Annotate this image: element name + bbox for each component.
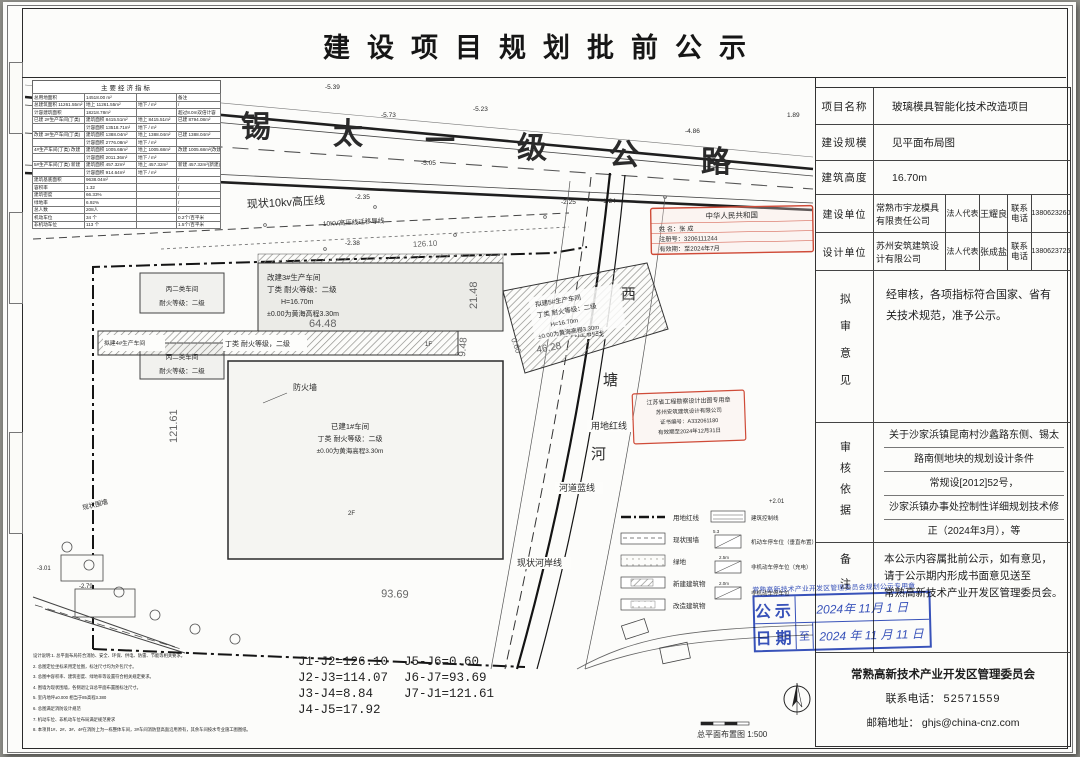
svg-text:丁类 耐火等级，二级: 丁类 耐火等级，二级 (225, 339, 290, 348)
basis-line: 沙家浜镇办事处控制性详细规划技术修 (884, 496, 1064, 520)
segment-length: J3-J4=8.84 (298, 686, 388, 702)
legend-renovated-building: 改造建筑物 (673, 601, 706, 610)
builder-legal-rep: 王耀良 (980, 195, 1008, 232)
blue-publicity-date-stamp: 常熟高新技术产业开发区管理委员会规划公示专用章 公示 2024年 11月 1 日… (752, 580, 932, 653)
opinion-text: 经审核，各项指标符合国家、省有关技术规范，准予公示。 (874, 271, 1070, 422)
indicator-row: 5#生产车间(丁类) 新建建筑面积 457.32m² 地上 457.32m²新建… (33, 161, 221, 169)
basis-line: 常规设[2012]52号， (884, 472, 1064, 496)
indicators-title: 主要经济指标 (32, 80, 221, 93)
boundary-segment-lengths: J1-J2=126.10J2-J3=114.07J3-J4=8.84J4-J5=… (298, 654, 494, 718)
svg-text:-4.86: -4.86 (685, 128, 700, 135)
svg-text:-4.66: -4.66 (701, 156, 716, 163)
dim-9369: 93.69 (381, 588, 409, 601)
basis-label: 审核依据 (816, 423, 874, 542)
svg-text:±0.00为黄海高程3.30m: ±0.00为黄海高程3.30m (267, 309, 339, 318)
builder-tel-label: 联系电话 (1008, 195, 1032, 232)
indicator-row: 4#生产车间(丁类) 改建建筑面积 1005.68m² 地上 1005.68m²… (33, 146, 221, 154)
indicator-row: 总人数208人 / (33, 206, 221, 214)
svg-text:-2.35: -2.35 (355, 194, 370, 201)
svg-text:-2.79: -2.79 (79, 584, 93, 590)
segment-length: J2-J3=114.07 (298, 670, 388, 686)
indicator-row: 建筑基底面积9638.04m² / (33, 176, 221, 184)
indicator-row: 计容面积 2011.36m² 地下 / m² (33, 154, 221, 162)
highway-name: 锡 太 一 级 公 路 (241, 111, 732, 179)
stamp-date-to: 2024 年 11 月 11 日 (813, 620, 930, 649)
design-note-line: 3. 总图中容积率、建筑密度、绿地率等设置符合相关规定要求。 (33, 672, 289, 683)
svg-text:级: 级 (517, 132, 547, 165)
svg-text:1.89: 1.89 (787, 112, 800, 119)
power-line-relocate-label: 10KV高压线迁移导线 (323, 216, 385, 228)
height-label: 建筑高度 (816, 161, 874, 194)
svg-text:现状围墙: 现状围墙 (81, 497, 109, 512)
indicator-row: 总用地面积14518.00 m² 备注 (33, 94, 221, 102)
economic-indicators-table: 主要经济指标 总用地面积14518.00 m² 备注 总建筑面积 11261.5… (32, 80, 220, 229)
design-note-line: 设计说明:1. 总平面布局符合消防、安全、环保、供电、防雷、节能等相关要求。 (33, 651, 289, 662)
dim-6448: 64.48 (309, 318, 337, 330)
svg-text:+2.01: +2.01 (769, 499, 785, 505)
segment-length: J6-J7=93.69 (404, 670, 494, 686)
red-stamp-architect: 中华人民共和国 姓 名：张 成 注册号：3206111244 有效期：至2024… (651, 206, 814, 255)
legend-control-line: 建筑控制线 (751, 514, 779, 522)
basis-text: 关于沙家浜镇昆南村沙蠡路东侧、锡太路南侧地块的规划设计条件常规设[2012]52… (874, 423, 1070, 542)
stamp-to-char: 至 (796, 623, 814, 649)
dim-948: 9.48 (457, 336, 470, 357)
basis-line: 关于沙家浜镇昆南村沙蠡路东侧、锡太 (884, 424, 1064, 448)
design-note-line: 5. 室内地坪±0.000 相当于85高程3.380 (33, 693, 289, 704)
legend-new-building: 新建建筑物 (673, 579, 706, 588)
dim-126: 126.10 (413, 239, 438, 249)
workshop-4-proposed: 拟建4#生产车间 丁类 耐火等级，二级 1F (98, 331, 458, 355)
indicator-row: 容积率1.32 / (33, 184, 221, 192)
svg-text:-5.23: -5.23 (473, 106, 488, 113)
legend-green: 绿地 (673, 557, 687, 566)
builder-name: 常熟市宇龙模具有限责任公司 (874, 195, 946, 232)
designer-label: 设计单位 (816, 233, 874, 270)
svg-text:改建3#生产车间: 改建3#生产车间 (267, 272, 320, 282)
svg-text:-5.39: -5.39 (325, 84, 340, 91)
svg-text:-5.73: -5.73 (381, 112, 396, 119)
svg-text:-1.24: -1.24 (601, 198, 616, 205)
svg-text:一: 一 (425, 125, 455, 158)
basis-line: 路南侧地块的规划设计条件 (884, 448, 1064, 472)
indicator-row: 改建 3#生产车间(丁类)建筑面积 1388.04m² 地上 1388.04m²… (33, 131, 221, 139)
svg-text:1F: 1F (425, 342, 432, 348)
dim-2148: 21.48 (468, 281, 480, 309)
design-note-line: 8. 本项目1#、2#、3#、4#在消防上为一栋整体车间，3#车间消防登高面沿用… (33, 725, 289, 736)
legend-redline: 用地红线 (673, 513, 700, 522)
workshop-1-existing: 防火墙 已建1#车间 丁类 耐火等级：二级 ±0.00为黄海高程3.30m 2F (228, 361, 503, 559)
designer-tel-label: 联系电话 (1008, 233, 1032, 270)
indicator-row: 总建筑面积 11261.55m²地上 11261.55m² 地下 / m²/ (33, 101, 221, 109)
basis-line: 正（2024年3月），等 (884, 520, 1064, 542)
margin-titleblock-2 (9, 212, 23, 304)
indicator-row: 计容面积 914.64m² 地下 / m² (33, 169, 221, 177)
design-note-line: 2. 总图定位坐标采用定位图，标注尺寸均为外包尺寸。 (33, 662, 289, 673)
svg-text:-2.38: -2.38 (345, 240, 360, 247)
north-arrow-icon (784, 683, 810, 715)
scale-bar (701, 722, 749, 725)
opinion-label: 拟审意见 (816, 271, 874, 422)
segment-length: J5-J6=0.60 (404, 654, 494, 670)
indicator-row: 机动车位34 个 0.2个/百平米 (33, 214, 221, 222)
svg-text:丙二类车间: 丙二类车间 (166, 284, 199, 293)
indicator-row: 已建 2#生产车间(丁类)建筑面积 8415.51m² 地上 8415.51m²… (33, 116, 221, 124)
svg-text:注册号：3206111244: 注册号：3206111244 (659, 234, 718, 243)
svg-text:耐火等级：二级: 耐火等级：二级 (159, 298, 205, 307)
authority-name: 常熟高新技术产业开发区管理委员会 (816, 663, 1070, 687)
margin-titleblock-1 (9, 62, 23, 134)
margin-titleblock-3 (9, 432, 23, 534)
svg-text:-3.01: -3.01 (37, 566, 51, 572)
panel-footer: 常熟高新技术产业开发区管理委员会 联系电话： 52571559 邮箱地址： gh… (816, 653, 1070, 735)
svg-text:太: 太 (333, 118, 364, 151)
power-line-existing-label: 现状10kv高压线 (246, 193, 325, 211)
svg-text:2.5m: 2.5m (719, 555, 729, 560)
authority-email: 邮箱地址： ghjs@china-cnz.com (816, 711, 1070, 735)
plan-caption: 总平面布置图 1:500 (697, 729, 768, 739)
riverbank-label: 现状河岸线 (517, 557, 562, 568)
workshop-3-renovated: 改建3#生产车间 丁类 耐火等级：二级 H=16.70m ±0.00为黄海高程3… (258, 254, 503, 331)
svg-text:姓 名：张 成: 姓 名：张 成 (659, 225, 694, 234)
height-value: 16.70m (874, 161, 1070, 194)
builder-label: 建设单位 (816, 195, 874, 232)
redline-label: 用地红线 (591, 420, 627, 431)
firewall-label: 防火墙 (293, 382, 317, 392)
workshop-classC-1: 丙二类车间 耐火等级：二级 (140, 273, 224, 313)
small-structures (621, 619, 690, 664)
dim-12161: 121.61 (168, 409, 180, 443)
indicator-row: 绿地率6.92% / (33, 199, 221, 207)
svg-text:5.3: 5.3 (713, 529, 720, 534)
designer-name: 苏州安筑建筑设计有限公司 (874, 233, 946, 270)
indicator-row: 计容面积 13518.71m² 地下 / m² (33, 124, 221, 132)
svg-text:锡: 锡 (241, 111, 271, 144)
authority-tel: 联系电话： 52571559 (816, 687, 1070, 711)
svg-text:中华人民共和国: 中华人民共和国 (705, 210, 758, 221)
indicator-row: 计容建筑面积18218.78m² 超过8.0m双倍计容 (33, 109, 221, 117)
legend-fence: 现状围墙 (673, 535, 700, 544)
indicator-row: 非机动车位113 个 1.5个/百平米 (33, 221, 221, 229)
project-name-label: 项目名称 (816, 88, 874, 124)
svg-text:丁类 耐火等级：二级: 丁类 耐火等级：二级 (318, 434, 383, 443)
svg-text:H=16.70m: H=16.70m (281, 299, 314, 306)
indicator-row: 计容面积 2776.08m² 地下 / m² (33, 139, 221, 147)
svg-text:丁类 耐火等级：二级: 丁类 耐火等级：二级 (267, 284, 337, 294)
legend-car-parking: 机动车停车位（垂直布置） (751, 538, 815, 546)
svg-text:-2.25: -2.25 (561, 199, 576, 206)
legal-rep-label: 法人代表 (946, 195, 980, 232)
svg-text:公: 公 (609, 139, 639, 172)
svg-text:河: 河 (591, 446, 606, 463)
svg-text:-5.05: -5.05 (421, 160, 436, 167)
svg-text:±0.00为黄海高程3.30m: ±0.00为黄海高程3.30m (317, 446, 384, 455)
stamp-date-from: 2024年 11月 1 日 (795, 593, 929, 622)
existing-fence-area: 现状围墙 -3.01 -2.79 (33, 497, 240, 653)
page-title: 建设项目规划批前公示 (3, 26, 1080, 65)
segment-length: J4-J5=17.92 (298, 702, 388, 718)
paper-sheet: 建设项目规划批前公示 锡 太 一 级 公 路 (3, 2, 1076, 754)
svg-text:2F: 2F (348, 511, 355, 517)
stamp-label-riqi: 日期 (755, 623, 797, 650)
svg-text:有效期：至2024年7月: 有效期：至2024年7月 (659, 244, 720, 253)
designer-tel: 1380623726 (1032, 233, 1070, 270)
designer-legal-rep: 张成盐 (980, 233, 1008, 270)
river-blueline-label: 河道蓝线 (559, 482, 595, 493)
remark-line: 本公示内容属批前公示，如有意见， (884, 551, 1066, 568)
stamp-label-gongshi: 公示 (754, 596, 796, 623)
design-notes: 设计说明:1. 总平面布局符合消防、安全、环保、供电、防雷、节能等相关要求。2.… (33, 651, 289, 736)
legend-bike-parking-charge: 非机动车停车位（充电） (751, 563, 812, 571)
svg-text:拟建4#生产车间: 拟建4#生产车间 (104, 339, 145, 347)
red-stamp-design-institute: 江苏省工程勘察设计出图专用章 苏州安筑建筑设计有限公司 证书编号：A332061… (632, 390, 746, 444)
scale-value: 见平面布局图 (874, 125, 1070, 160)
svg-text:塘: 塘 (603, 372, 618, 389)
segment-length: J1-J2=126.10 (298, 654, 388, 670)
legal-rep-label-2: 法人代表 (946, 233, 980, 270)
svg-text:耐火等级：二级: 耐火等级：二级 (159, 366, 205, 375)
svg-text:已建1#车间: 已建1#车间 (331, 421, 369, 431)
project-name-value: 玻璃模具智能化技术改造项目 (874, 88, 1070, 124)
segment-length: J7-J1=121.61 (404, 686, 494, 702)
design-note-line: 4. 围墙为现状围墙，各侧退让详总平面布置图标注尺寸。 (33, 683, 289, 694)
builder-tel: 1380623260 (1032, 195, 1070, 232)
design-note-line: 7. 机动车位、非机动车位布局满足规范要求 (33, 715, 289, 726)
scale-label: 建设规模 (816, 125, 874, 160)
svg-text:2.0m: 2.0m (719, 581, 729, 586)
design-note-line: 6. 总图满足消防设计规范 (33, 704, 289, 715)
scanned-planning-notice: { "header": { "title": "建设项目规划批前公示" }, "… (0, 0, 1080, 757)
indicator-row: 建筑密度66.33% / (33, 191, 221, 199)
